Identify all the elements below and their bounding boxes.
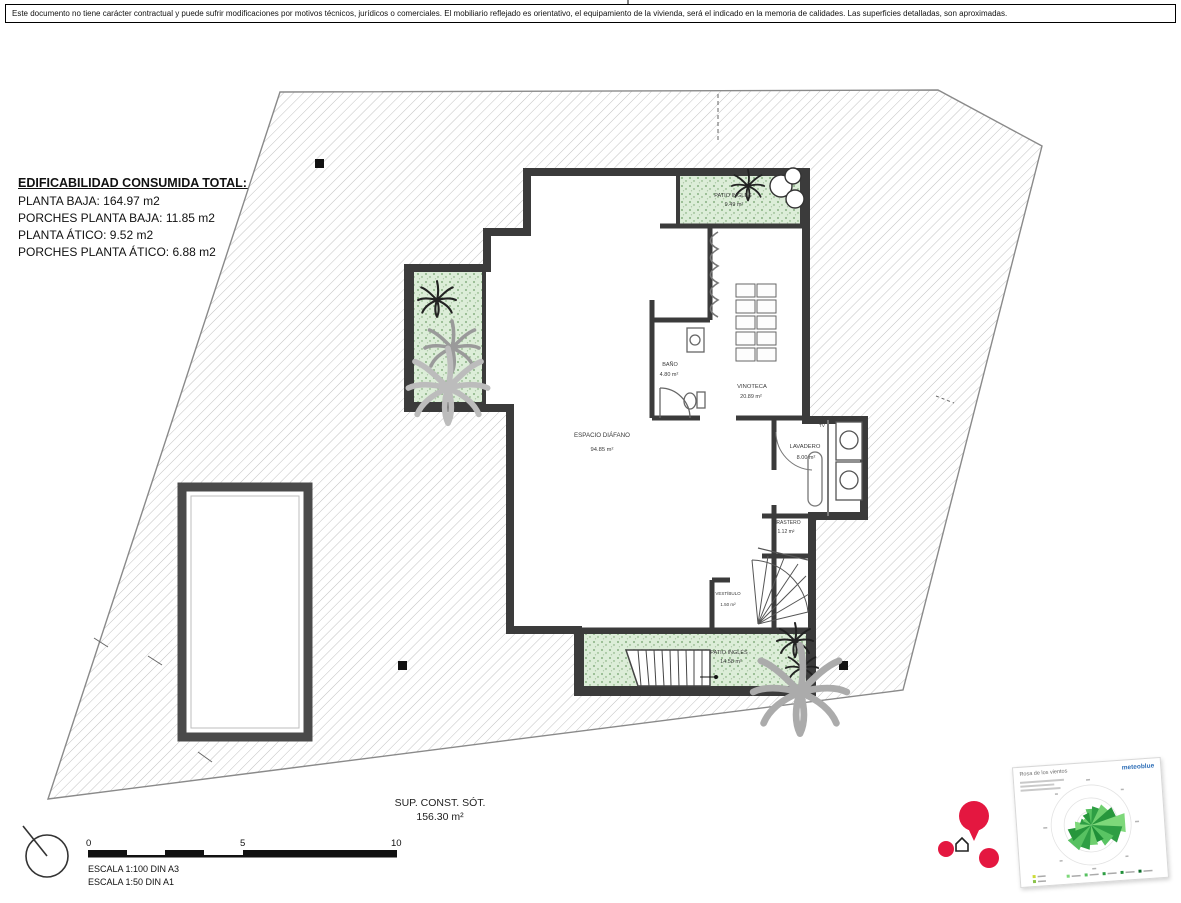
drawing-sheet: Este documento no tiene carácter contrac… bbox=[0, 0, 1181, 898]
room-area-vestibulo: 1.50 m² bbox=[720, 602, 736, 607]
room-label-patio-bottom: PATIO INGLÉS bbox=[710, 649, 748, 656]
windrose-petals bbox=[1065, 803, 1126, 851]
north-indicator bbox=[23, 826, 68, 877]
location-marker-cluster bbox=[938, 801, 999, 868]
room-label-lavadero: LAVADERO bbox=[790, 444, 821, 450]
room-area-patio-bottom: 14.58 m² bbox=[720, 659, 742, 665]
scale-tick-5: 5 bbox=[240, 838, 245, 849]
scale-tick-10: 10 bbox=[391, 838, 402, 849]
scale-text-1: ESCALA 1:100 DIN A3 bbox=[88, 864, 179, 874]
room-area-patio-top: 9.49 m² bbox=[725, 202, 744, 208]
room-area-trastero: 1.12 m² bbox=[778, 529, 795, 535]
room-label-patio-top: PATIO INGLÉS bbox=[714, 192, 752, 199]
sup-const-label: SUP. CONST. SÓT. bbox=[355, 797, 525, 809]
scale-bar: 0 5 10 ESCALA 1:100 DIN A3 ESCALA 1:50 D… bbox=[86, 838, 402, 887]
house-icon bbox=[956, 838, 968, 851]
exterior-stair bbox=[626, 650, 718, 686]
scale-tick-0: 0 bbox=[86, 838, 91, 849]
room-area-lavadero: 8.00 m² bbox=[797, 455, 816, 461]
windrose-chart bbox=[1013, 758, 1168, 887]
room-label-espacio: ESPACIO DIÁFANO bbox=[574, 432, 630, 439]
room-area-bano: 4.80 m² bbox=[660, 372, 679, 378]
room-label-vinoteca: VINOTECA bbox=[737, 384, 767, 390]
basement-surface-note: SUP. CONST. SÓT. 156.30 m² bbox=[355, 797, 525, 823]
pool bbox=[182, 487, 308, 737]
site-plan: PATIO INGLÉS 9.49 m² BAÑO 4.80 m² VINOTE… bbox=[0, 0, 1181, 898]
room-area-vinoteca: 20.89 m² bbox=[740, 394, 762, 400]
label-tv: TV bbox=[819, 423, 825, 428]
room-label-bano: BAÑO bbox=[662, 361, 678, 368]
room-area-espacio: 94.85 m² bbox=[591, 447, 614, 453]
windrose-card: Rosa de los vientos meteoblue bbox=[1012, 757, 1169, 888]
room-label-vestibulo: VESTÍBULO bbox=[715, 590, 741, 596]
room-label-trastero: TRASTERO bbox=[773, 520, 800, 526]
scale-text-2: ESCALA 1:50 DIN A1 bbox=[88, 877, 174, 887]
sup-const-value: 156.30 m² bbox=[355, 811, 525, 823]
site-plan-svg: PATIO INGLÉS 9.49 m² BAÑO 4.80 m² VINOTE… bbox=[0, 0, 1181, 898]
